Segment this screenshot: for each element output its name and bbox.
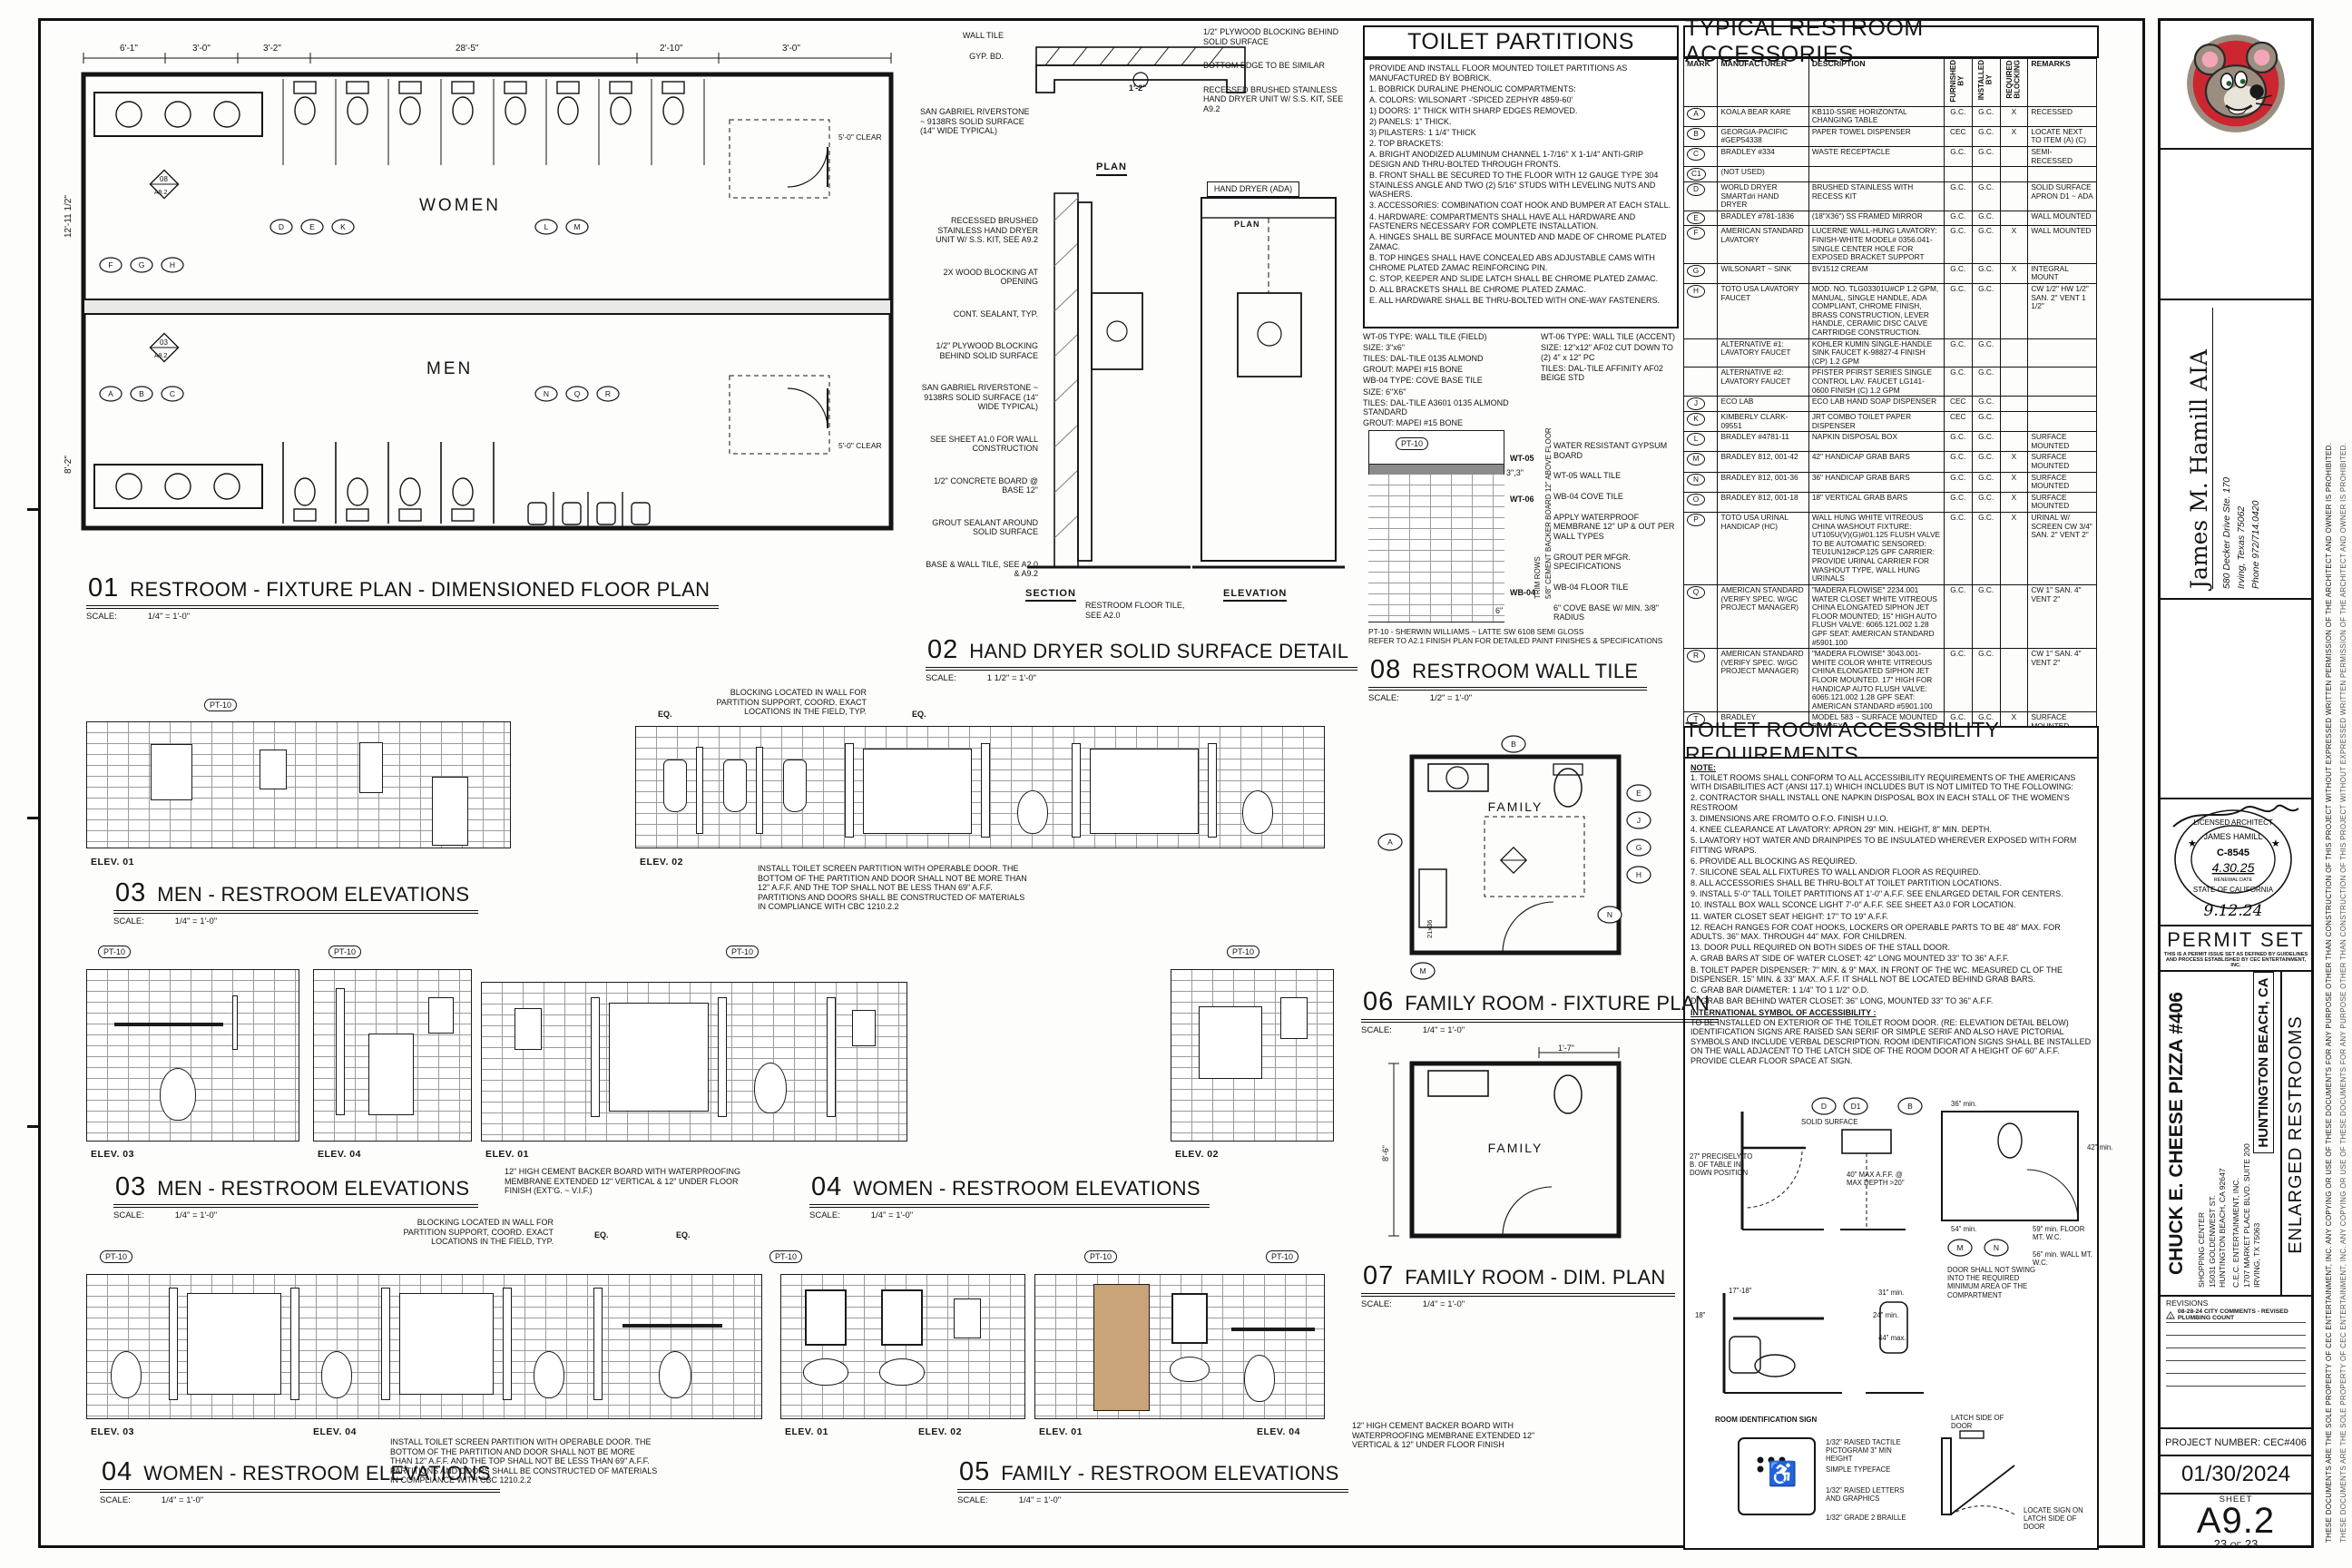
vertical-note: 5/8" CEMENT BACKER BOARD 12" ABOVE FLOOR — [1544, 427, 1553, 599]
revision-row-empty — [2166, 1348, 2306, 1361]
mark-bubble — [1687, 373, 1703, 375]
cell-installed — [1972, 167, 2000, 182]
dim-label: 12'-11 1/2" — [64, 195, 73, 238]
dim-label: 28'-5" — [456, 44, 479, 54]
panel-name: FAMILY ROOM - DIM. PLAN — [1405, 1266, 1665, 1289]
fixture-hand-dryer — [954, 1298, 981, 1338]
note-line: E. ALL HARDWARE SHALL BE THRU-BOLTED WIT… — [1369, 296, 1672, 306]
elev-label: ELEV. 03 — [91, 1426, 134, 1437]
callout-text: WB-04 COVE TILE — [1553, 492, 1679, 502]
cell-installed: G.C. — [1972, 411, 2000, 431]
mark-bubble: H — [170, 260, 175, 269]
cell-installed: G.C. — [1972, 284, 2000, 339]
fixture-hand-dryer — [260, 750, 287, 789]
cell-description: KB110-SSRE HORIZONTAL CHANGING TABLE — [1808, 106, 1944, 126]
diagram-label: 24" min. — [1873, 1311, 1898, 1319]
cell-description: 42" HANDICAP GRAB BARS — [1808, 452, 1944, 472]
cell-blocking — [2000, 411, 2028, 431]
note-label: NOTE: — [1690, 763, 2092, 773]
pt10-tag: PT-10 — [204, 699, 237, 711]
scale-label: SCALE: — [86, 612, 117, 622]
tile-spec-line: WT-06 TYPE: WALL TILE (ACCENT) — [1541, 332, 1677, 342]
accessory-row: E BRADLEY #781-1836 (18"X36") SS FRAMED … — [1684, 211, 2097, 226]
cell-furnished: CEC — [1944, 397, 1972, 412]
panel-name: FAMILY - RESTROOM ELEVATIONS — [1001, 1462, 1338, 1485]
cell-furnished: CEC — [1944, 126, 1972, 146]
stall-pilaster — [1208, 743, 1217, 838]
detail-diamond-ref: 08 — [160, 175, 168, 183]
screen-partition-note: INSTALL TOILET SCREEN PARTITION WITH OPE… — [758, 864, 1030, 912]
detail-diamond-sheet: A9.2 — [154, 190, 168, 196]
cell-remarks: WALL MOUNTED — [2028, 211, 2097, 226]
panel-name: FAMILY ROOM - FIXTURE PLAN — [1405, 992, 1710, 1015]
grab-bar — [1231, 1328, 1315, 1331]
tile-spec-line: TILES: DAL-TILE A3601 0135 ALMOND STANDA… — [1363, 398, 1534, 417]
note-line: 2. CONTRACTOR SHALL INSTALL ONE NAPKIN D… — [1690, 793, 2092, 812]
dim-label: 5'-0" CLEAR — [838, 441, 882, 450]
cell-manufacturer: BRADLEY 812, 001-42 — [1718, 452, 1808, 472]
tile-spec-line: GROUT: MAPEI #15 BONE — [1363, 365, 1534, 375]
dim-label: 8'-2" — [64, 456, 73, 474]
cell-manufacturer: ECO LAB — [1718, 397, 1808, 412]
svg-text:★: ★ — [2271, 838, 2280, 849]
callout-text: GROUT PER MFGR. SPECIFICATIONS — [1553, 553, 1679, 572]
diagram-label: 44" max. — [1878, 1334, 1906, 1342]
logo-box — [2161, 21, 2311, 150]
stall-pilaster — [827, 997, 836, 1117]
panel-number: 06 — [1363, 987, 1394, 1017]
diagram-label: SIMPLE TYPEFACE — [1826, 1465, 1907, 1474]
dim-label: 21x36 — [1426, 920, 1434, 938]
dim-label: 1'-7" — [1558, 1044, 1574, 1053]
elev-label: ELEV. 02 — [640, 857, 683, 867]
pt10-tag: PT-10 — [328, 946, 361, 958]
women-elev-01-strip — [481, 982, 907, 1142]
cell-blocking — [2000, 584, 2028, 648]
stamp-renewal-label: RENEWAL DATE — [2214, 877, 2253, 883]
cell-furnished: G.C. — [1944, 181, 1972, 211]
project-box: CHUCK E. CHEESE PIZZA #406 SHOPPING CENT… — [2161, 972, 2311, 1297]
mark-bubble: D — [279, 222, 284, 231]
panel-name: HAND DRYER SOLID SURFACE DETAIL — [969, 640, 1348, 663]
cell-remarks — [2028, 338, 2097, 367]
svg-text:♿: ♿ — [1768, 1460, 1797, 1487]
family-door — [1093, 1284, 1150, 1411]
fixture-toilet — [321, 1351, 352, 1398]
diagram-label: 27" PRECISELY TO B. OF TABLE IN DOWN POS… — [1690, 1152, 1760, 1178]
accessory-row: D WORLD DRYER SMARTdri HAND DRYER BRUSHE… — [1684, 181, 2097, 211]
cell-manufacturer: AMERICAN STANDARD (VERIFY SPEC. W/GC PRO… — [1718, 584, 1808, 648]
cell-installed: G.C. — [1972, 126, 2000, 146]
dim-label: 8'-6" — [1381, 1145, 1390, 1161]
cell-manufacturer: KOALA BEAR KARE — [1718, 106, 1808, 126]
note-line: A. GRAB BARS AT SIDE OF WATER CLOSET: 42… — [1690, 954, 2092, 964]
diagram-label: 54" min. — [1951, 1225, 1976, 1233]
stall-door — [863, 749, 972, 834]
cell-manufacturer: AMERICAN STANDARD (VERIFY SPEC. W/GC PRO… — [1718, 649, 1808, 712]
elev-label: ELEV. 01 — [485, 1149, 529, 1160]
accessory-row: ALTERNATIVE #2: LAVATORY FAUCET PFISTER … — [1684, 367, 2097, 397]
cell-blocking — [2000, 167, 2028, 182]
sheet-number-box: SHEET A9.2 23 OF 23 — [2161, 1494, 2311, 1548]
callout-text: GROUT SEALANT AROUND SOLID SURFACE — [920, 518, 1038, 537]
cell-description: NAPKIN DISPOSAL BOX — [1808, 432, 1944, 452]
project-addr2: HUNTINGTON BEACH, CA 92647 — [2218, 979, 2229, 1288]
blocking-note: BLOCKING LOCATED IN WALL FOR PARTITION S… — [708, 688, 867, 717]
cell-description: 36" HANDICAP GRAB BARS — [1808, 472, 1944, 492]
note-line: 8. ALL ACCESSORIES SHALL BE THRU-BOLT AT… — [1690, 878, 2092, 888]
stall-pilaster — [718, 997, 727, 1117]
note-line: B. FRONT SHALL BE SECURED TO THE FLOOR W… — [1369, 171, 1672, 200]
toilet-partitions-notes: PROVIDE AND INSTALL FLOOR MOUNTED TOILET… — [1363, 58, 1679, 328]
revision-number: 1 — [2170, 1314, 2172, 1319]
col-furnished-by: FURNISHED BY — [1950, 60, 1965, 103]
cell-manufacturer: BRADLEY #334 — [1718, 147, 1808, 167]
detail-diamond-sheet: A9.2 — [154, 353, 168, 359]
cell-blocking: X — [2000, 513, 2028, 585]
note-line: 3. DIMENSIONS ARE FROM/TO O.F.O. FINISH … — [1690, 814, 2092, 824]
cell-remarks: SEMI-RECESSED — [2028, 147, 2097, 167]
cell-manufacturer: WILSONART ~ SINK — [1718, 263, 1808, 283]
cell-installed: G.C. — [1972, 211, 2000, 226]
elev-label: ELEV. 04 — [1257, 1426, 1300, 1437]
mark-bubble: R — [1687, 650, 1705, 662]
blank-box — [2161, 150, 2311, 300]
panel-title-07: 07FAMILY ROOM - DIM. PLAN SCALE:1/4" = 1… — [1361, 1261, 1675, 1309]
stall-pilaster — [1072, 743, 1081, 838]
note-line: 1) DOORS: 1" THICK WITH SHARP EDGES REMO… — [1369, 106, 1672, 116]
fixture-dispenser — [1280, 997, 1308, 1039]
cell-remarks: CW 1" SAN. 4" VENT 2" — [2028, 649, 2097, 712]
view-label-plan: PLAN — [1234, 220, 1260, 230]
cell-remarks: SURFACE MOUNTED — [2028, 492, 2097, 512]
cell-description: "MADERA FLOWISE" 2234.001 WATER CLOSET W… — [1808, 584, 1944, 648]
mark-bubble: H — [1687, 285, 1705, 298]
cell-furnished: G.C. — [1944, 649, 1972, 712]
fixture-mirror — [805, 1289, 847, 1346]
callout-solid-surface: SAN GABRIEL RIVERSTONE ~ 9138RS SOLID SU… — [920, 107, 1036, 136]
revision-row-empty — [2166, 1374, 2306, 1387]
panel-title-04a: 04WOMEN - RESTROOM ELEVATIONS SCALE:1/4"… — [809, 1172, 1210, 1220]
tile-spec-block: WT-05 TYPE: WALL TILE (FIELD)SIZE: 3"x6"… — [1363, 332, 1679, 429]
fixture-toilet — [659, 1351, 691, 1398]
sheet-title: ENLARGED RESTROOMS — [2286, 978, 2307, 1291]
cell-description: PFISTER PFIRST SERIES SINGLE CONTROL LAV… — [1808, 367, 1944, 397]
panel-name: WOMEN - RESTROOM ELEVATIONS — [853, 1177, 1200, 1200]
panel-title-06: 06FAMILY ROOM - FIXTURE PLAN SCALE:1/4" … — [1361, 987, 1719, 1035]
diagram-label: 31" min. — [1878, 1289, 1904, 1297]
grab-bar — [622, 1324, 722, 1328]
cell-installed: G.C. — [1972, 226, 2000, 263]
cell-remarks: SOLID SURFACE APRON D1 ~ ADA — [2028, 181, 2097, 211]
restroom-fixture-plan-drawing: 6'-1" 3'-0" 3'-2" 28'-5" 2'-10" 3'-0" 12… — [56, 38, 914, 564]
note-line: 10. INSTALL BOX WALL SCONCE LIGHT 7'-0" … — [1690, 900, 2092, 910]
view-label-elevation: ELEVATION — [1223, 588, 1287, 602]
note-line: A. HINGES SHALL BE SURFACE MOUNTED AND M… — [1369, 232, 1672, 251]
stall-pilaster — [845, 743, 854, 838]
cell-blocking — [2000, 367, 2028, 397]
stall-pilaster — [169, 1288, 178, 1400]
cell-blocking — [2000, 397, 2028, 412]
cell-installed: G.C. — [1972, 338, 2000, 367]
sheet-date: 01/30/2024 — [2161, 1456, 2311, 1494]
fixture-dispenser — [852, 1010, 876, 1046]
callout-text: RECESSED BRUSHED STAINLESS HAND DRYER UN… — [920, 216, 1038, 245]
scale-label: SCALE: — [809, 1210, 840, 1220]
mark-bubble: N — [1994, 1243, 1999, 1252]
detail-callouts-plan-right: 1/2" PLYWOOD BLOCKING BEHIND SOLID SURFA… — [1203, 27, 1356, 114]
revision-row-empty — [2166, 1361, 2306, 1374]
scale-value: 1/2" = 1'-0" — [1430, 693, 1472, 703]
pt10-tag: PT-10 — [726, 946, 759, 958]
stall-pilaster — [981, 743, 990, 838]
fixture-lavatory — [1170, 1357, 1210, 1382]
cell-installed: G.C. — [1972, 397, 2000, 412]
accessory-row: Q AMERICAN STANDARD (VERIFY SPEC. W/GC P… — [1684, 584, 2097, 648]
cell-blocking — [2000, 284, 2028, 339]
cell-installed: G.C. — [1972, 452, 2000, 472]
accessory-row: F AMERICAN STANDARD LAVATORY LUCERNE WAL… — [1684, 226, 2097, 263]
note-line: 3) PILASTERS: 1 1/4" THICK — [1369, 128, 1672, 138]
women-elev-02-strip — [1171, 969, 1334, 1142]
blocking-note: BLOCKING LOCATED IN WALL FOR PARTITION S… — [395, 1218, 554, 1247]
cell-furnished: G.C. — [1944, 513, 1972, 585]
tile-spec-line: WB-04 TYPE: COVE BASE TILE — [1363, 376, 1534, 386]
cell-blocking: X — [2000, 263, 2028, 283]
cell-installed: G.C. — [1972, 147, 2000, 167]
callout-text: GYP. BD. — [920, 52, 1004, 62]
men-elev-02-strip — [635, 726, 1325, 848]
fixture-dispenser — [428, 997, 454, 1034]
pt10-tag: PT-10 — [1084, 1250, 1117, 1263]
cell-blocking — [2000, 211, 2028, 226]
cell-remarks: WALL MOUNTED — [2028, 226, 2097, 263]
cell-furnished: G.C. — [1944, 492, 1972, 512]
cell-remarks: SURFACE MOUNTED — [2028, 432, 2097, 452]
cell-description: LUCERNE WALL-HUNG LAVATORY: FINISH-WHITE… — [1808, 226, 1944, 263]
col-mark: MARK — [1684, 59, 1718, 107]
panel-title-04b: 04WOMEN - RESTROOM ELEVATIONS SCALE:1/4"… — [100, 1457, 500, 1505]
revisions-title: REVISIONS — [2161, 1298, 2311, 1308]
project-name: CHUCK E. CHEESE PIZZA #406 — [2166, 979, 2188, 1288]
men-elev-03-strip — [86, 969, 299, 1142]
mark-bubble: C1 — [1687, 168, 1706, 181]
elev-label: ELEV. 02 — [1175, 1149, 1219, 1160]
mark-bubble: E — [1636, 789, 1641, 798]
fixture-toilet — [1244, 1355, 1275, 1402]
hand-dryer-ada-label: HAND DRYER (ADA) — [1207, 181, 1299, 197]
elev-label: ELEV. 04 — [313, 1426, 357, 1437]
callout-text: WATER RESISTANT GYPSUM BOARD — [1553, 441, 1679, 460]
note-line: 12. REACH RANGES FOR COAT HOOKS, LOCKERS… — [1690, 923, 2092, 942]
scale-value: 1/4" = 1'-0" — [1019, 1495, 1061, 1505]
cell-blocking — [2000, 432, 2028, 452]
fixture-mirror — [1171, 1293, 1208, 1344]
cell-manufacturer: BRADLEY 812, 001-36 — [1718, 472, 1808, 492]
note-line: 2. TOP BRACKETS: — [1369, 139, 1672, 149]
note-line: B. TOILET PAPER DISPENSER: 7" MIN. & 9" … — [1690, 965, 2092, 985]
note-line: A. BRIGHT ANODIZED ALUMINUM CHANNEL 1-7/… — [1369, 150, 1672, 169]
mark-bubble: A — [108, 389, 113, 398]
mark-bubble: J — [1637, 816, 1641, 825]
fixture-dispenser — [514, 1008, 542, 1050]
section-title: TOILET PARTITIONS — [1407, 29, 1634, 55]
pt10-tag: PT-10 — [1396, 437, 1428, 450]
accessory-row: R AMERICAN STANDARD (VERIFY SPEC. W/GC P… — [1684, 649, 2097, 712]
scale-value: 1/4" = 1'-0" — [175, 1210, 217, 1220]
cell-blocking: X — [2000, 126, 2028, 146]
mark-bubble: C — [170, 389, 175, 398]
fixture-trash — [368, 1034, 414, 1115]
architect-addr1: 580 Decker Drive Ste. 170 — [2220, 308, 2235, 589]
mark-bubble: D — [1821, 1102, 1827, 1111]
tile-spec-line: SIZE: 6"X6" — [1363, 387, 1534, 397]
accessory-row: A KOALA BEAR KARE KB110-SSRE HORIZONTAL … — [1684, 106, 2097, 126]
fixture-toilet — [160, 1068, 196, 1121]
cell-furnished: G.C. — [1944, 263, 1972, 283]
cell-description: 18" VERTICAL GRAB BARS — [1808, 492, 1944, 512]
mark-bubble: E — [309, 222, 315, 231]
pt10-tag: PT-10 — [1227, 946, 1259, 958]
cell-blocking — [2000, 147, 2028, 167]
cell-installed: G.C. — [1972, 106, 2000, 126]
cell-description: BV1512 CREAM — [1808, 263, 1944, 283]
room-label-family: FAMILY — [1488, 799, 1543, 814]
note-line: 3. ACCESSORIES: COMBINATION COAT HOOK AN… — [1369, 201, 1672, 211]
project-center: SHOPPING CENTER — [2197, 979, 2208, 1288]
cell-furnished — [1944, 167, 1972, 182]
panel-number: 04 — [811, 1172, 842, 1202]
cell-description: BRUSHED STAINLESS WITH RECESS KIT — [1808, 181, 1944, 211]
project-city: HUNTINGTON BEACH, CA — [2253, 972, 2274, 1153]
scale-label: SCALE: — [1368, 693, 1399, 703]
callout-text: CONT. SEALANT, TYP. — [920, 309, 1038, 319]
cell-furnished: G.C. — [1944, 147, 1972, 167]
callout-text: SAN GABRIEL RIVERSTONE ~ 9138RS SOLID SU… — [920, 383, 1038, 412]
pt10-note: PT-10 - SHERWIN WILLIAMS ~ LATTE SW 6108… — [1368, 628, 1681, 646]
note-line: C. STOP, KEEPER AND SLIDE LATCH SHALL BE… — [1369, 274, 1672, 284]
elev-label: ELEV. 01 — [1039, 1426, 1083, 1437]
cell-remarks: SURFACE MOUNTED — [2028, 472, 2097, 492]
mark-bubble: O — [1687, 494, 1705, 506]
col-remarks: REMARKS — [2028, 59, 2097, 107]
cell-description: (18"X36") SS FRAMED MIRROR — [1808, 211, 1944, 226]
stamp-name: JAMES HAMILL — [2203, 832, 2262, 841]
architect-name: James M. Hamill AIA — [2186, 308, 2213, 589]
tile-spec-line: TILES: DAL-TILE 0135 ALMOND — [1363, 354, 1534, 364]
wt05-tag: WT-05 — [1510, 454, 1534, 464]
pt10-tag: PT-10 — [100, 1250, 132, 1263]
accessory-row: M BRADLEY 812, 001-42 42" HANDICAP GRAB … — [1684, 452, 2097, 472]
panel-title-02: 02HAND DRYER SOLID SURFACE DETAIL SCALE:… — [926, 635, 1357, 683]
cell-furnished: G.C. — [1944, 106, 1972, 126]
project-address: SHOPPING CENTER 15031 GOLDENWEST ST. HUN… — [2197, 979, 2229, 1288]
cell-manufacturer: WORLD DRYER SMARTdri HAND DRYER — [1718, 181, 1808, 211]
backer-board-note: 12" HIGH CEMENT BACKER BOARD WITH WATERP… — [1352, 1421, 1561, 1450]
note-line: D. GRAB BAR BEHIND WATER CLOSET: 36" LON… — [1690, 996, 2092, 1006]
callout-text: 1/2" PLYWOOD BLOCKING BEHIND SOLID SURFA… — [920, 341, 1038, 360]
note-line: 11. WATER CLOSET SEAT HEIGHT: 17" TO 19"… — [1690, 912, 2092, 922]
elev-label: ELEV. 01 — [91, 857, 134, 867]
panel-number: 05 — [959, 1457, 990, 1487]
callout-floor-tile: RESTROOM FLOOR TILE, SEE A2.0 — [1085, 601, 1185, 620]
elev-label: ELEV. 01 — [785, 1426, 828, 1437]
diagram-label: 17"-18" — [1729, 1287, 1751, 1295]
title-block: James M. Hamill AIA 580 Decker Drive Ste… — [2158, 18, 2314, 1548]
mark-bubble — [1687, 345, 1703, 347]
cell-furnished: G.C. — [1944, 472, 1972, 492]
family-dim-plan: 8'-6" 1'-7" FAMILY — [1376, 1044, 1657, 1257]
cell-installed: G.C. — [1972, 472, 2000, 492]
cell-manufacturer: ALTERNATIVE #1: LAVATORY FAUCET — [1718, 338, 1808, 367]
mark-bubble: G — [139, 260, 145, 269]
col-required-blocking: REQUIRED BLOCKING — [2006, 60, 2022, 99]
callout-text: 2X WOOD BLOCKING AT OPENING — [920, 268, 1038, 287]
callout-text: 1/2" PLYWOOD BLOCKING BEHIND SOLID SURFA… — [1203, 27, 1356, 46]
note-line: A. COLORS: WILSONART -'SPICED ZEPHYR 485… — [1369, 95, 1672, 105]
chuck-e-cheese-logo — [2186, 34, 2286, 133]
scale-value: 1/4" = 1'-0" — [148, 612, 190, 622]
fold-tick — [27, 817, 40, 819]
dim-label: 1'-2" — [1129, 83, 1146, 93]
cell-remarks — [2028, 367, 2097, 397]
accessory-row: ALTERNATIVE #1: LAVATORY FAUCET KOHLER K… — [1684, 338, 2097, 367]
revision-delta-icon: 1 — [2166, 1310, 2175, 1320]
women-elev-03-04-strip — [86, 1274, 762, 1419]
cell-manufacturer: KIMBERLY CLARK-09551 — [1718, 411, 1808, 431]
permit-set-box: PERMIT SET THIS IS A PERMIT ISSUE SET AS… — [2161, 926, 2311, 972]
toilet-partitions-header: TOILET PARTITIONS — [1363, 25, 1679, 58]
mark-bubble: N — [1607, 910, 1612, 919]
mark-bubble: E — [1687, 212, 1705, 225]
sheet-of: OF — [2230, 1541, 2242, 1550]
tile-spec-line: TILES: DAL-TILE AFFINITY AF02 BEIGE STD — [1541, 364, 1677, 383]
mark-bubble: R — [605, 389, 611, 398]
panel-number: 03 — [115, 1172, 146, 1202]
architect-addr2: Irving, Texas 75062 — [2235, 308, 2249, 589]
fixture-urinal — [723, 759, 747, 812]
mark-bubble: K — [340, 222, 346, 231]
cell-remarks — [2028, 397, 2097, 412]
family-elev-strip — [1034, 1274, 1325, 1419]
cell-blocking: X — [2000, 226, 2028, 263]
scale-label: SCALE: — [957, 1495, 988, 1505]
permit-set-title: PERMIT SET — [2161, 928, 2311, 952]
panel-number: 01 — [88, 573, 119, 603]
callout-text: BOTTOM EDGE TO BE SIMILAR — [1203, 61, 1356, 71]
scale-label: SCALE: — [926, 673, 956, 683]
mark-bubble: B — [1511, 740, 1516, 749]
cell-furnished: G.C. — [1944, 584, 1972, 648]
dim-label: 5'-0" CLEAR — [838, 132, 882, 142]
mark-bubble: N — [1687, 474, 1705, 486]
pt10-note-2: REFER TO A2.1 FINISH PLAN FOR DETAILED P… — [1368, 637, 1681, 646]
diagram-label: DOOR SHALL NOT SWING INTO THE REQUIRED M… — [1947, 1266, 2047, 1299]
mark-bubble: B — [1687, 128, 1705, 141]
diagram-label: 1/32" GRADE 2 BRAILLE — [1826, 1514, 1907, 1522]
room-label-men: MEN — [426, 359, 473, 378]
panel-title-08: 08RESTROOM WALL TILE SCALE:1/2" = 1'-0" — [1368, 655, 1647, 703]
cell-description: WASTE RECEPTACLE — [1808, 147, 1944, 167]
detail-callouts-section: RECESSED BRUSHED STAINLESS HAND DRYER UN… — [920, 216, 1038, 579]
dim-label: 3'-0" — [192, 44, 211, 54]
fixture-urinal — [663, 759, 687, 812]
accessory-row: N BRADLEY 812, 001-36 36" HANDICAP GRAB … — [1684, 472, 2097, 492]
scale-value: 1/4" = 1'-0" — [175, 916, 217, 926]
cell-manufacturer: BRADLEY 812, 001-18 — [1718, 492, 1808, 512]
room-label-family: FAMILY — [1488, 1141, 1543, 1155]
callout-text: APPLY WATERPROOF MEMBRANE 12" UP & OUT P… — [1553, 513, 1679, 542]
